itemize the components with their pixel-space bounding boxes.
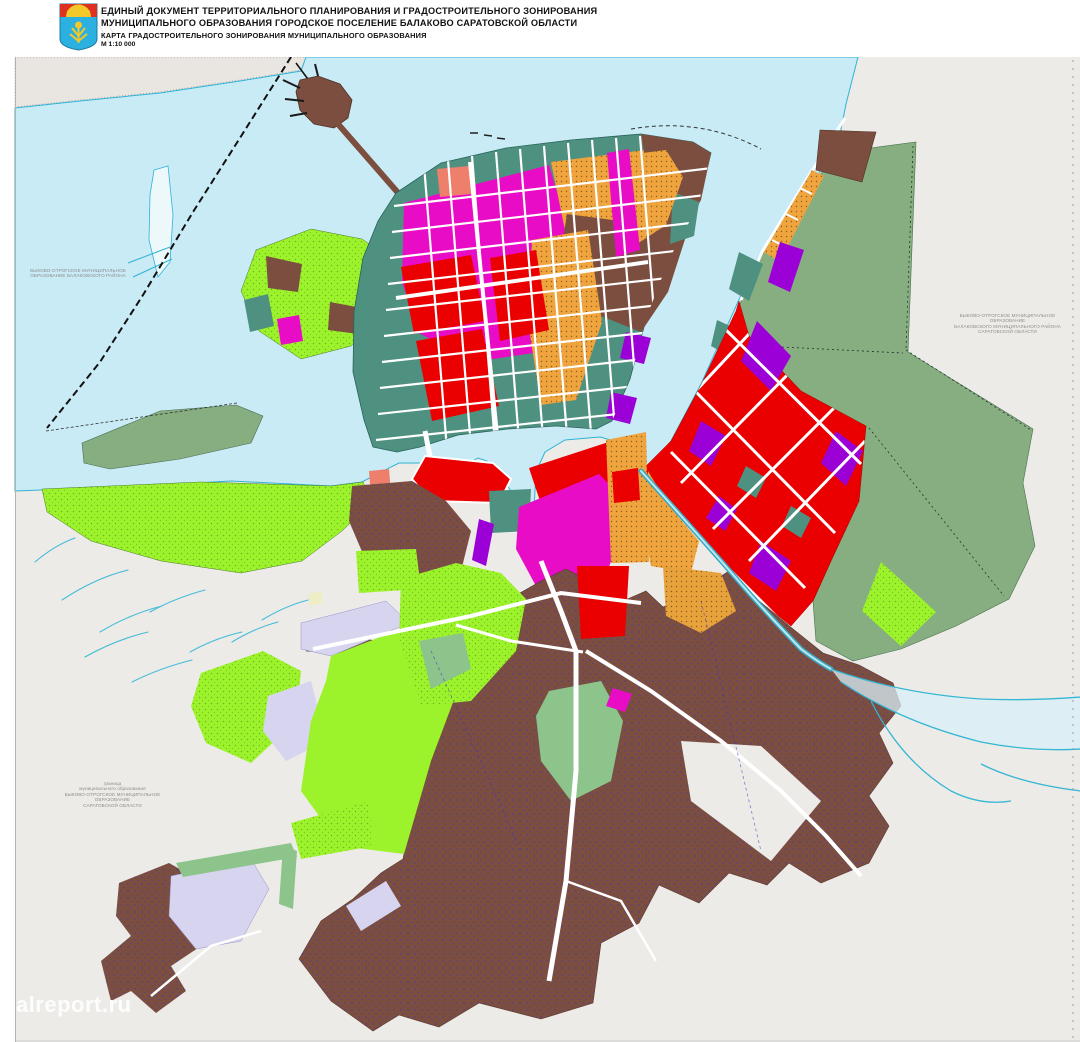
adjacent-territory-label-left: БЫКОВО-ОТРОГСКОЕ МУНИЦИПАЛЬНОЕ ОБРАЗОВАН… bbox=[28, 268, 128, 279]
map-subtitle: КАРТА ГРАДОСТРОИТЕЛЬНОГО ЗОНИРОВАНИЯ МУН… bbox=[101, 31, 741, 40]
map-scale: М 1:10 000 bbox=[101, 40, 741, 49]
adjacent-territory-label-bottom-left: граница муниципального образования БЫКОВ… bbox=[50, 781, 175, 808]
map-title-line1: ЕДИНЫЙ ДОКУМЕНТ ТЕРРИТОРИАЛЬНОГО ПЛАНИРО… bbox=[101, 6, 741, 18]
map-title-block: ЕДИНЫЙ ДОКУМЕНТ ТЕРРИТОРИАЛЬНОГО ПЛАНИРО… bbox=[0, 0, 1080, 57]
watermark: balreport.ru bbox=[2, 992, 131, 1018]
map-title-line2: МУНИЦИПАЛЬНОГО ОБРАЗОВАНИЯ ГОРОДСКОЕ ПОС… bbox=[101, 18, 741, 30]
map-frame-left bbox=[15, 57, 16, 1042]
map-sheet: ЕДИНЫЙ ДОКУМЕНТ ТЕРРИТОРИАЛЬНОГО ПЛАНИРО… bbox=[0, 0, 1080, 1042]
adjacent-territory-label-right: БЫКОВО-ОТРОГСКОЕ МУНИЦИПАЛЬНОЕ ОБРАЗОВАН… bbox=[945, 313, 1070, 335]
coat-of-arms bbox=[59, 3, 98, 51]
zoning-map bbox=[0, 0, 1080, 1042]
